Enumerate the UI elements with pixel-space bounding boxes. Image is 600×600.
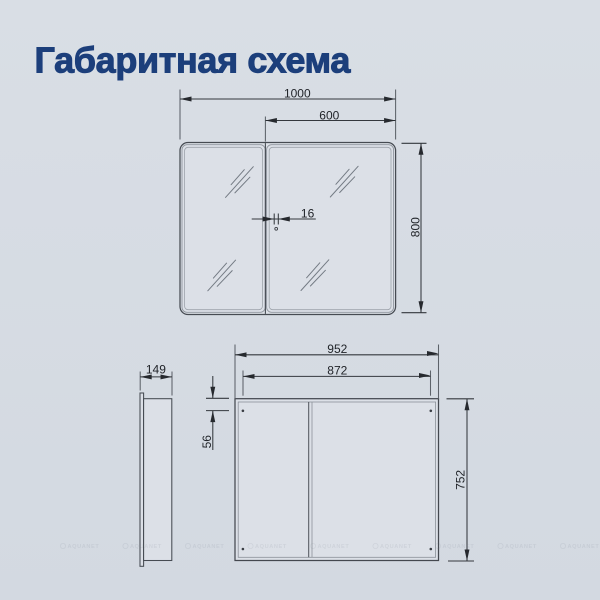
svg-text:800: 800 bbox=[408, 217, 422, 237]
svg-text:16: 16 bbox=[301, 206, 315, 220]
svg-text:149: 149 bbox=[146, 363, 166, 377]
svg-text:752: 752 bbox=[453, 470, 467, 490]
svg-text:872: 872 bbox=[327, 363, 347, 377]
svg-text:1000: 1000 bbox=[284, 87, 311, 101]
svg-text:952: 952 bbox=[327, 342, 347, 356]
svg-text:Габаритная схема: Габаритная схема bbox=[35, 39, 352, 80]
svg-text:600: 600 bbox=[319, 108, 339, 122]
svg-text:56: 56 bbox=[200, 435, 214, 449]
